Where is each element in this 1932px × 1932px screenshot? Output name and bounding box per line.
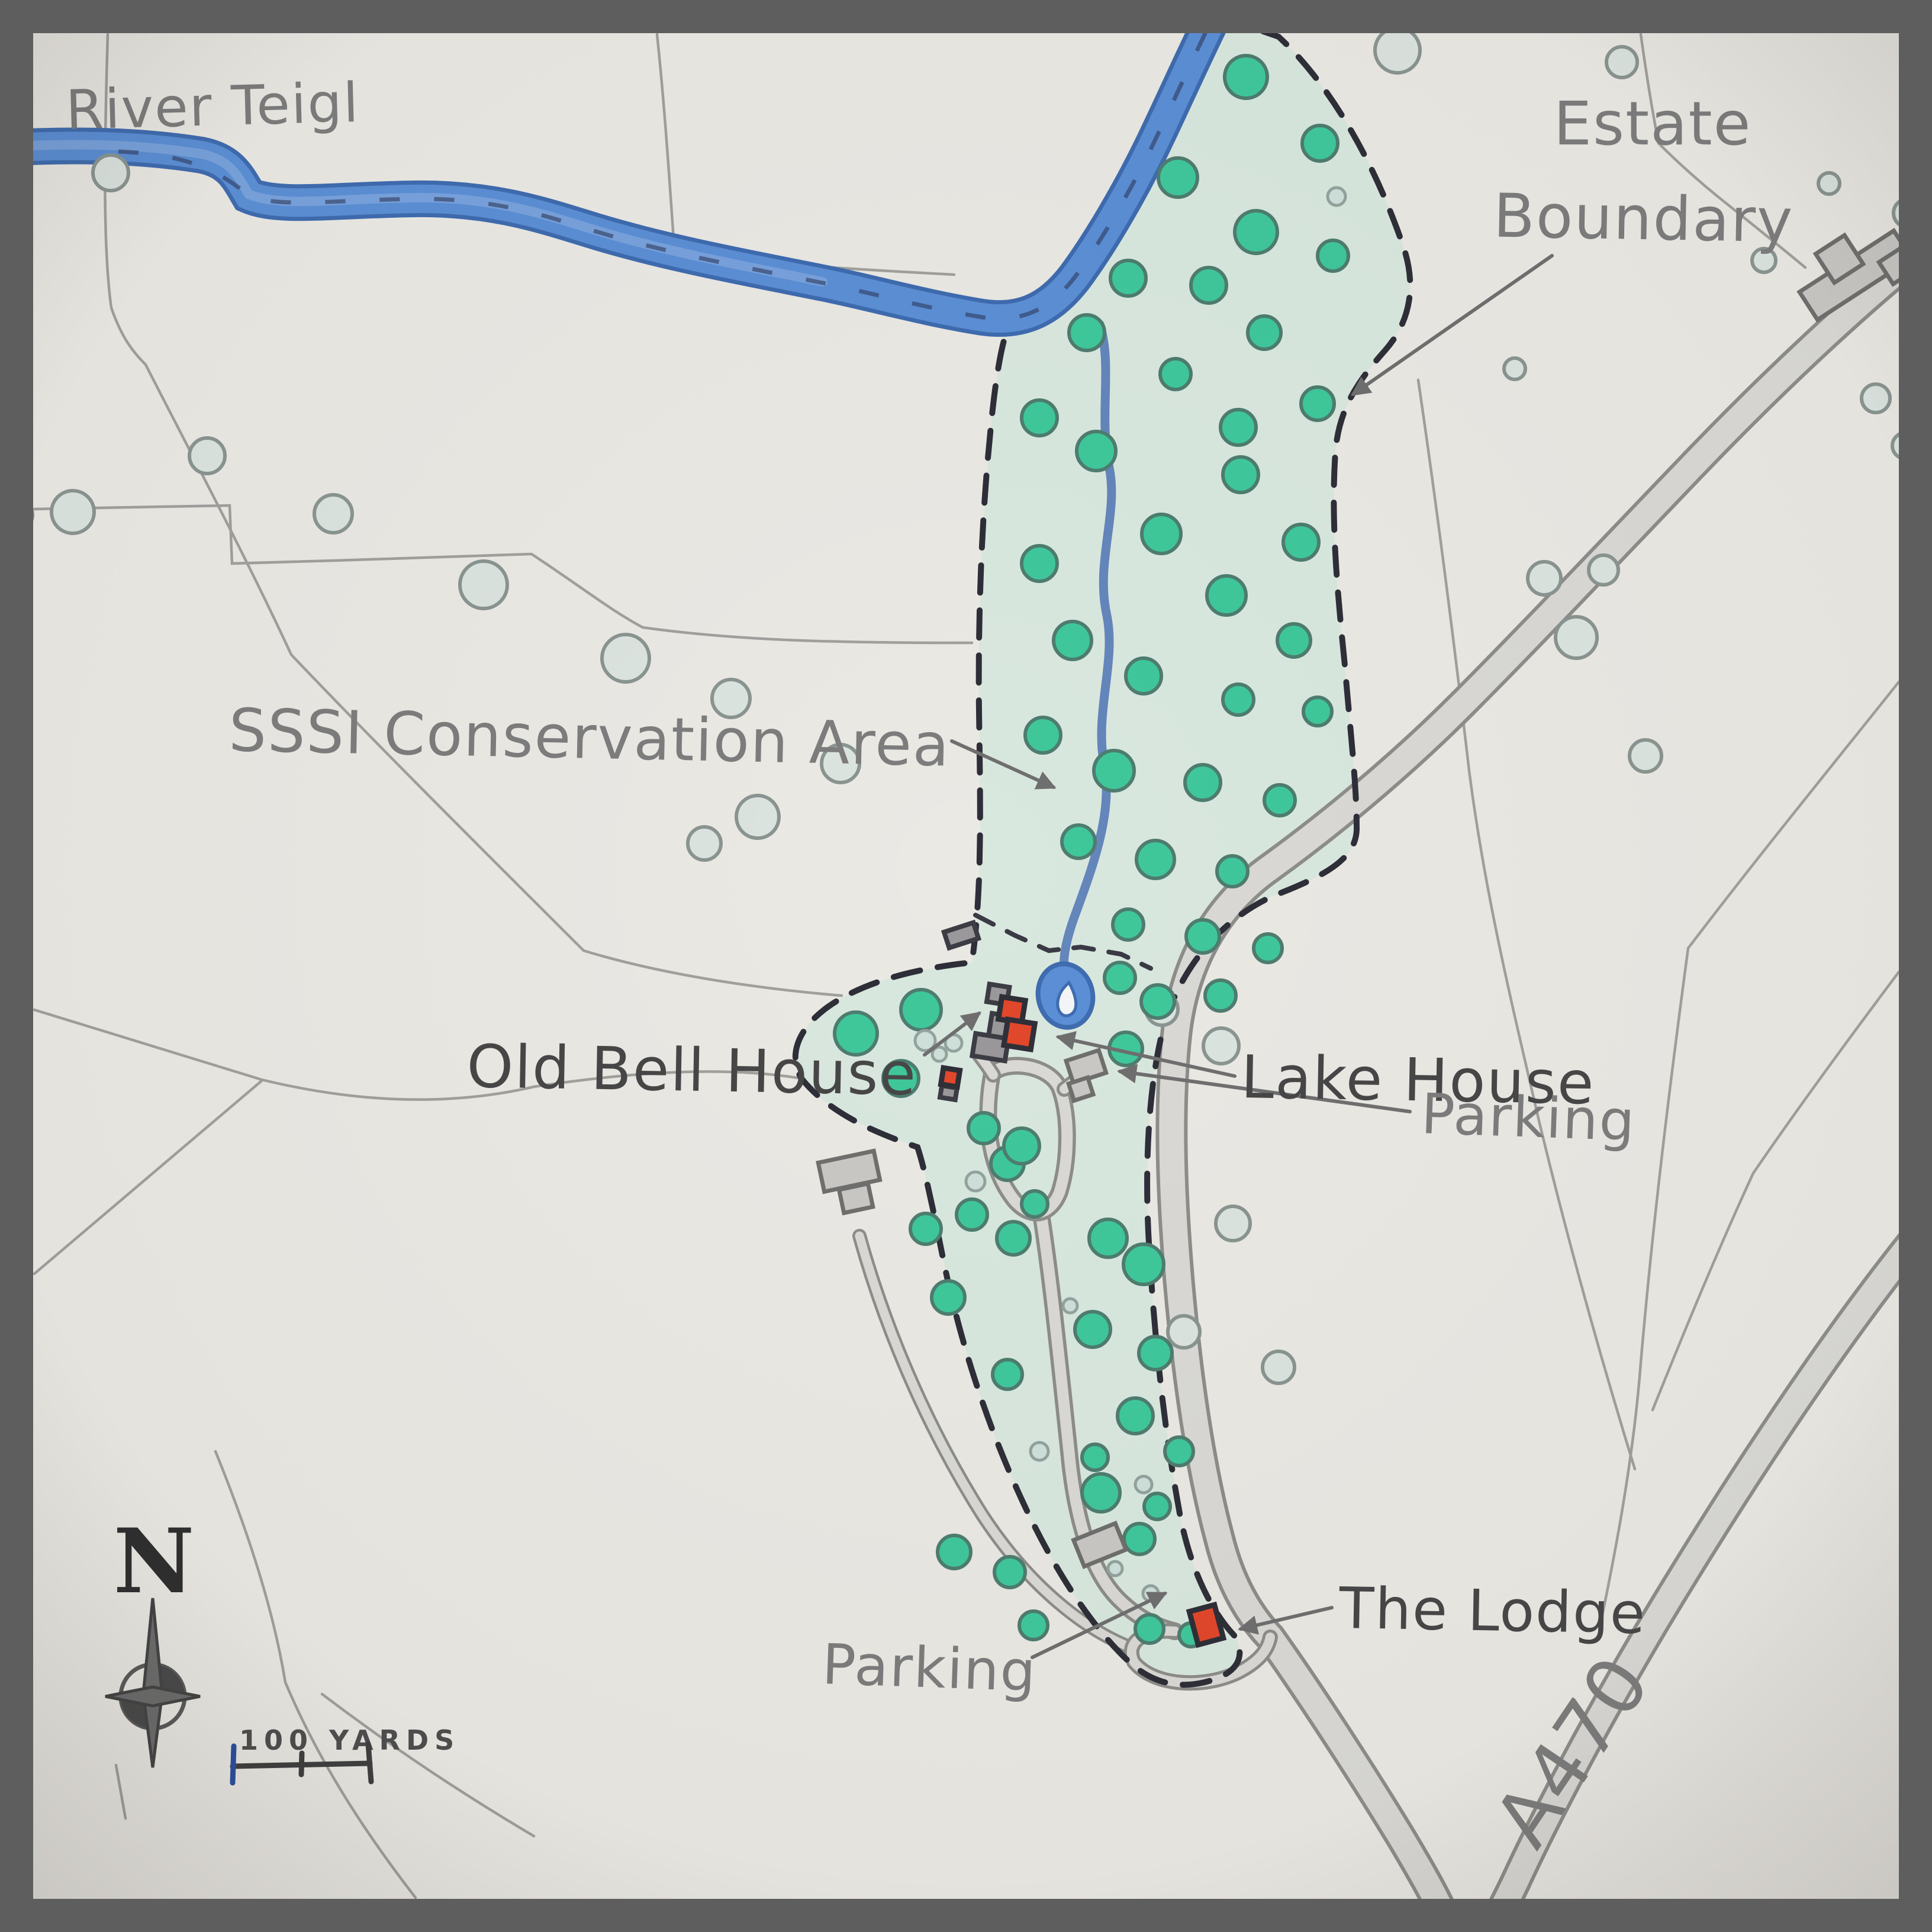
compass-north-label: N (113, 1509, 194, 1614)
tree (966, 1172, 985, 1191)
scale-bar-tick-mid (301, 1753, 302, 1775)
tree (1318, 240, 1348, 271)
tree (938, 1535, 971, 1569)
tree (1216, 1206, 1250, 1241)
tree (1135, 1476, 1152, 1493)
tree (968, 1113, 999, 1144)
tree (1191, 268, 1226, 303)
tree (1113, 909, 1144, 940)
tree (1283, 524, 1319, 560)
tree (997, 1222, 1030, 1255)
tree (1504, 358, 1525, 379)
tree (1022, 400, 1057, 436)
tree (1862, 384, 1890, 413)
estate-boundary-label-1: Estate (1554, 89, 1752, 159)
tree (1094, 751, 1134, 791)
tree (1264, 785, 1295, 816)
tree (1108, 1561, 1122, 1576)
tree (1263, 1351, 1295, 1383)
tree (1063, 1299, 1077, 1313)
tree (1221, 410, 1256, 445)
tree (1248, 316, 1281, 349)
estate-boundary-label-2: Boundary (1493, 181, 1794, 257)
tree (1139, 1337, 1172, 1370)
tree (1077, 432, 1116, 471)
tree (1168, 1316, 1200, 1348)
tree (1818, 173, 1840, 194)
tree (1062, 825, 1095, 858)
tree (1223, 684, 1254, 715)
tree (460, 561, 507, 608)
the-lodge-building (1189, 1605, 1223, 1644)
lodge-label: The Lodge (1338, 1575, 1647, 1647)
tree (1136, 841, 1174, 878)
scale-bar-tick-right (368, 1744, 371, 1782)
tree (688, 827, 721, 860)
tree (1082, 1444, 1108, 1470)
outbuilding (939, 1068, 959, 1100)
tree (1235, 211, 1277, 253)
tree (901, 990, 941, 1030)
tree (1054, 622, 1091, 659)
parking-upper-label: Parking (1420, 1082, 1637, 1154)
tree (1022, 546, 1057, 581)
tree (1223, 457, 1258, 492)
tree (1186, 920, 1219, 953)
scale-bar-label: 100 YARDS (239, 1724, 460, 1756)
tree (1207, 576, 1246, 615)
tree (1302, 125, 1338, 161)
tree (1158, 158, 1197, 197)
tree (1142, 514, 1181, 553)
tree (1160, 359, 1191, 389)
tree (314, 495, 352, 533)
scale-bar-tick-left (233, 1746, 234, 1783)
tree (993, 1360, 1022, 1389)
tree (189, 438, 225, 474)
tree (1528, 562, 1561, 595)
tree (1203, 1028, 1239, 1064)
tree (1031, 1442, 1048, 1460)
tree (1556, 617, 1597, 658)
tree (51, 491, 94, 533)
tree (1217, 856, 1248, 887)
tree (1630, 740, 1661, 772)
tree (1606, 47, 1637, 78)
tree (1303, 697, 1332, 726)
tree (1141, 985, 1174, 1018)
tree (1277, 624, 1310, 657)
tree (1126, 658, 1161, 694)
tree (736, 796, 779, 838)
tree (1135, 1615, 1164, 1643)
tree (1118, 1398, 1153, 1434)
tree (1025, 717, 1061, 753)
tree (93, 155, 128, 191)
tree (1124, 1524, 1155, 1554)
tree (1110, 260, 1146, 296)
tree (1004, 1128, 1039, 1164)
tree (1165, 1437, 1193, 1466)
tree (1019, 1611, 1048, 1640)
tree (1205, 980, 1236, 1011)
lake-house (1004, 1019, 1035, 1049)
tree (1123, 1244, 1164, 1284)
tree (1105, 962, 1135, 993)
tree (1225, 56, 1267, 98)
tree (602, 635, 649, 682)
tree (932, 1281, 965, 1314)
tree (994, 1557, 1025, 1588)
tree (1075, 1312, 1110, 1347)
tree (1185, 765, 1221, 800)
tree (1589, 555, 1618, 585)
old-bell-house-label: Old Bell House (466, 1032, 918, 1109)
tree (1328, 188, 1345, 205)
estate-map: River Teigl Estate Boundary SSSI Conserv… (0, 0, 1932, 1932)
tree (1144, 1493, 1170, 1519)
tree (957, 1199, 987, 1230)
tree (1375, 28, 1420, 73)
river-label: River Teigl (65, 71, 360, 142)
parking-lower-label: Parking (821, 1632, 1038, 1705)
tree (1069, 315, 1105, 350)
tree (1254, 934, 1282, 962)
tree (1082, 1474, 1120, 1512)
tree (1301, 387, 1334, 420)
tree (910, 1213, 941, 1244)
tree (1089, 1219, 1127, 1257)
tree (1022, 1191, 1048, 1217)
